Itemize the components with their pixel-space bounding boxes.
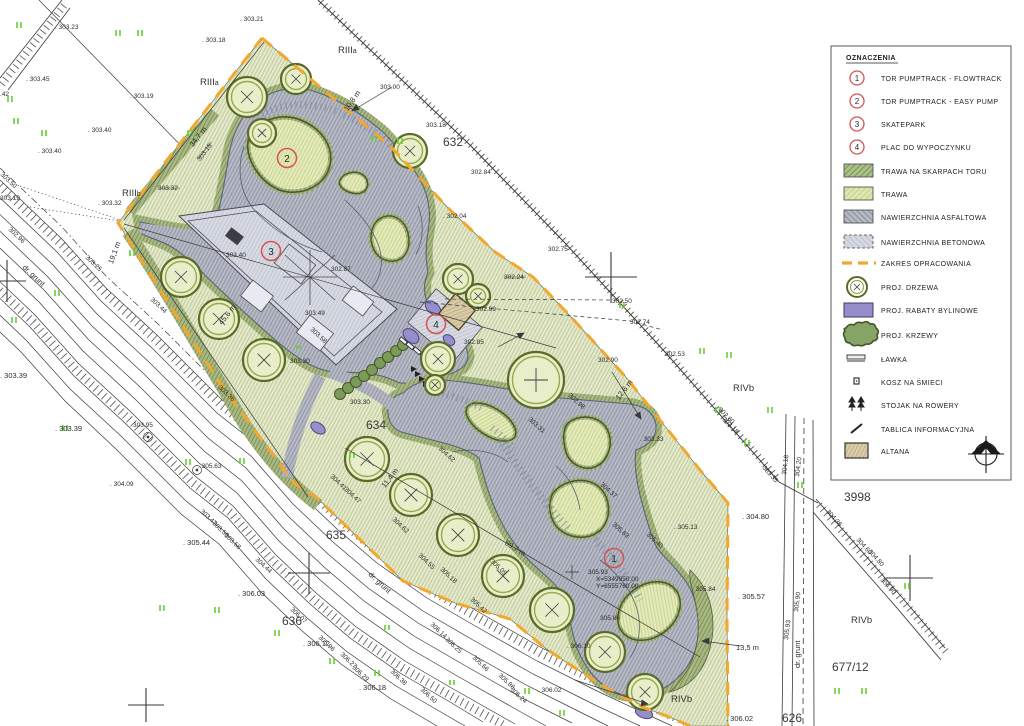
svg-text:. 305.63: . 305.63 [198,463,222,470]
svg-text:303.95: 303.95 [133,422,153,429]
svg-text:PLAC DO WYPOCZYNKU: PLAC DO WYPOCZYNKU [881,145,971,152]
svg-text:RIVb: RIVb [851,615,872,626]
svg-text:. 303.45: . 303.45 [26,76,50,83]
svg-text:. 303.33: . 303.33 [640,436,664,443]
svg-text:302.74: 302.74 [630,319,650,326]
svg-text:TRAWA NA SKARPACH TORU: TRAWA NA SKARPACH TORU [881,169,987,176]
svg-text:303.18: 303.18 [426,122,446,129]
svg-text:. 303.19: . 303.19 [130,93,154,100]
svg-text:. 303.18: . 303.18 [202,37,226,44]
svg-text:303.32: 303.32 [158,185,178,192]
svg-text:STOJAK NA ROWERY: STOJAK NA ROWERY [881,403,959,410]
svg-text:302.50: 302.50 [612,298,632,305]
svg-text:KOSZ NA ŚMIECI: KOSZ NA ŚMIECI [881,378,943,387]
svg-text:ŁAWKA: ŁAWKA [881,357,907,364]
svg-text:SKATEPARK: SKATEPARK [881,122,926,129]
svg-text:dr. grunt: dr. grunt [793,640,802,668]
svg-text:302.24: 302.24 [504,274,524,281]
svg-text:4: 4 [433,320,439,331]
svg-text:RIVb: RIVb [671,694,692,705]
svg-text:303.00: 303.00 [380,84,400,91]
svg-text:. 306.18: . 306.18 [359,683,386,692]
svg-text:1: 1 [611,554,617,565]
svg-text:13,5 m: 13,5 m [736,643,759,652]
svg-text:634: 634 [366,418,386,432]
svg-text:2: 2 [284,154,290,165]
svg-text:. 306.02: . 306.02 [538,687,562,694]
svg-text:. 306.02: . 306.02 [726,714,753,723]
svg-text:626: 626 [782,711,802,725]
svg-text:PROJ. DRZEWA: PROJ. DRZEWA [881,285,938,292]
svg-text:. 303.39: . 303.39 [0,371,27,380]
svg-text:ALTANA: ALTANA [881,449,910,456]
svg-text:. 302.04: . 302.04 [443,213,467,220]
svg-text:302.87: 302.87 [331,266,351,273]
svg-text:302.90: 302.90 [598,357,618,364]
svg-text:. 305.57: . 305.57 [738,592,765,601]
svg-text:TABLICA INFORMACYJNA: TABLICA INFORMACYJNA [881,427,974,434]
svg-text:PROJ. KRZEWY: PROJ. KRZEWY [881,333,938,340]
svg-text:1: 1 [855,74,860,83]
svg-text:303.19: 303.19 [0,195,20,202]
svg-text:303.40: 303.40 [226,252,246,259]
svg-text:677/12: 677/12 [832,660,869,674]
svg-text:4: 4 [855,143,860,152]
svg-text:303.30: 303.30 [350,399,370,406]
svg-text:NAWIERZCHNIA BETONOWA: NAWIERZCHNIA BETONOWA [881,240,985,247]
svg-text:. 305.84: . 305.84 [692,586,716,593]
svg-text:. 306.10: . 306.10 [567,643,591,650]
svg-text:. 305.44: . 305.44 [183,538,210,547]
svg-text:302.75: 302.75 [548,246,568,253]
svg-text:303.30: 303.30 [290,358,310,365]
svg-text:.42: .42 [0,91,9,98]
svg-text:632: 632 [443,135,463,149]
svg-text:PROJ. RABATY BYLINOWE: PROJ. RABATY BYLINOWE [881,308,978,315]
svg-text:. 303.39: . 303.39 [55,424,82,433]
svg-text:. 303.21: . 303.21 [240,16,264,23]
svg-text:RIVb: RIVb [733,383,754,394]
svg-text:635: 635 [326,528,346,542]
svg-text:302.84: 302.84 [471,169,491,176]
svg-text:303.49: 303.49 [305,310,325,317]
svg-text:ZAKRES OPRACOWANIA: ZAKRES OPRACOWANIA [881,261,971,268]
svg-text:3: 3 [268,247,274,258]
svg-text:. 303.32: . 303.32 [98,200,122,207]
svg-text:X=5349950.00: X=5349950.00 [596,576,639,583]
svg-text:2: 2 [855,97,860,106]
svg-text:. 303.40: . 303.40 [88,127,112,134]
svg-text:OZNACZENIA: OZNACZENIA [846,55,896,62]
svg-text:. 304.80: . 304.80 [742,512,769,521]
svg-text:Y=6555760.00: Y=6555760.00 [596,583,639,590]
svg-text:. 303.40: . 303.40 [38,148,62,155]
svg-text:. 306.03: . 306.03 [238,589,265,598]
svg-text:3998: 3998 [844,490,871,504]
svg-text:302.99: 302.99 [476,306,496,313]
svg-text:305.93: 305.93 [588,569,608,576]
svg-text:302.85: 302.85 [464,339,484,346]
svg-text:3: 3 [855,120,860,129]
svg-text:TOR PUMPTRACK - EASY PUMP: TOR PUMPTRACK - EASY PUMP [881,99,998,106]
svg-text:. 304.09: . 304.09 [110,481,134,488]
svg-text:TRAWA: TRAWA [881,192,908,199]
svg-text:TOR PUMPTRACK - FLOWTRACK: TOR PUMPTRACK - FLOWTRACK [881,76,1002,83]
svg-text:302.53: 302.53 [665,351,685,358]
svg-text:. 303.23: . 303.23 [55,24,79,31]
svg-text:NAWIERZCHNIA ASFALTOWA: NAWIERZCHNIA ASFALTOWA [881,215,987,222]
svg-text:. 305.13: . 305.13 [674,524,698,531]
svg-text:305.86: 305.86 [600,615,620,622]
